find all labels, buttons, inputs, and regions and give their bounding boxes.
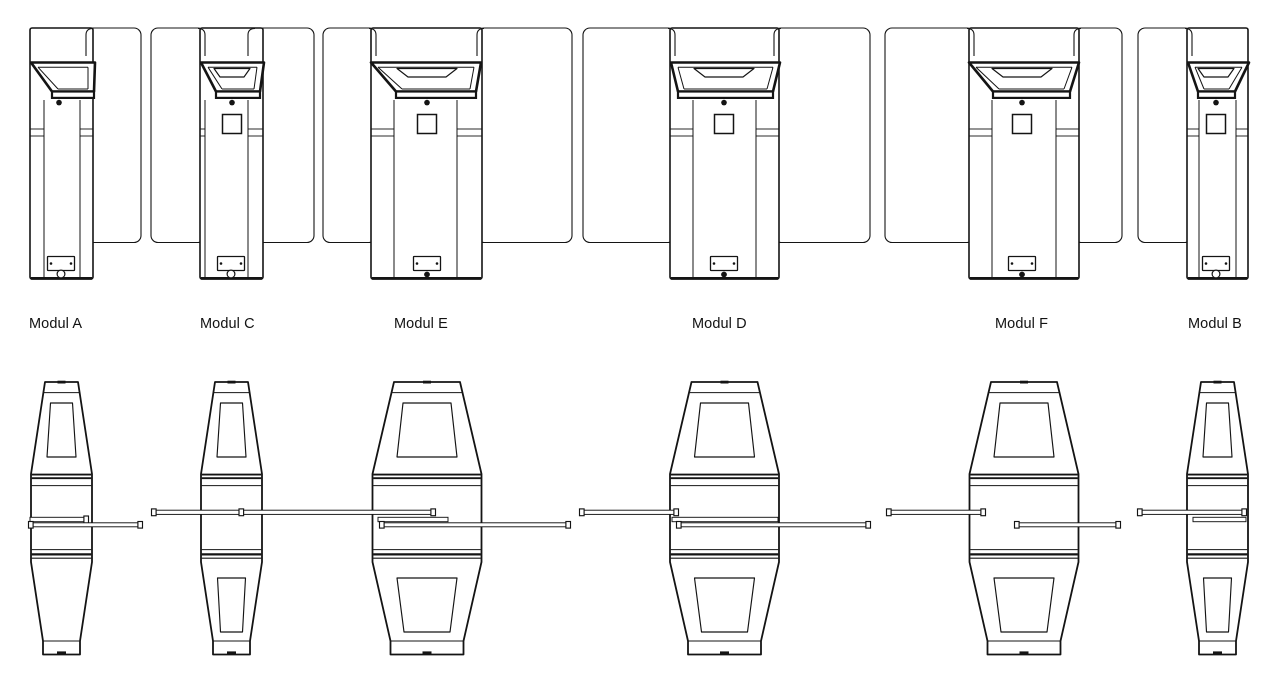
modul-c-plan-view — [151, 28, 314, 279]
module-label-b: Modul B — [1188, 317, 1242, 331]
modul-e-plan-view — [323, 28, 572, 279]
module-label-f: Modul F — [995, 317, 1048, 331]
module-label-c: Modul C — [200, 317, 255, 331]
modul-f-profile-view — [970, 381, 1079, 655]
modules-technical-drawing — [0, 0, 1280, 700]
modul-b-plan-view — [1138, 28, 1249, 279]
modul-c-profile-view — [201, 381, 262, 655]
module-label-a: Modul A — [29, 317, 82, 331]
datasheet-canvas: Modul A Modul C Modul E Modul D Modul F … — [0, 0, 1280, 700]
modul-f-plan-view — [885, 28, 1122, 279]
modul-a-plan-view — [30, 28, 141, 279]
module-label-e: Modul E — [394, 317, 448, 331]
modul-d-plan-view — [583, 28, 870, 279]
module-label-d: Modul D — [692, 317, 747, 331]
